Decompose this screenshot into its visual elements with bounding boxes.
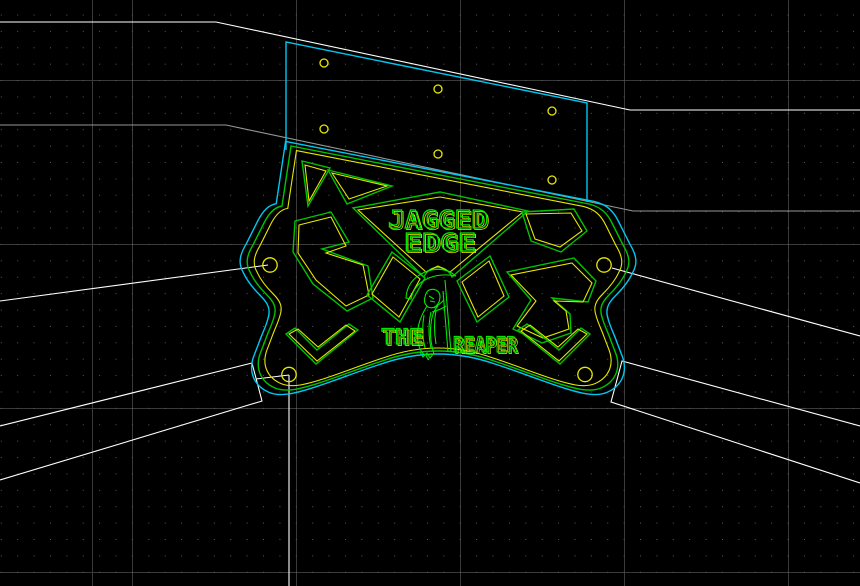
engraving-edge[interactable]: EDGE: [404, 228, 476, 257]
frame-line-right-mid[interactable]: [612, 268, 860, 336]
pocket-right-middle[interactable]: [507, 258, 596, 343]
mounting-hole-bottom-right[interactable]: [578, 367, 592, 381]
frame-line-left-mid[interactable]: [0, 265, 268, 301]
mounting-hole-right[interactable]: [597, 258, 611, 272]
rivet-hole[interactable]: [320, 125, 328, 133]
frame-strip-right[interactable]: [611, 361, 860, 483]
pocket-cutouts[interactable]: [286, 161, 596, 364]
pocket-left-upper-offset[interactable]: [298, 217, 369, 306]
pocket-left-lower-offset[interactable]: [289, 325, 355, 361]
frame-strip-left[interactable]: [0, 363, 262, 480]
rivet-hole[interactable]: [548, 176, 556, 184]
engraving-the[interactable]: THE: [381, 325, 423, 349]
pocket-right-lower-offset[interactable]: [521, 325, 587, 361]
pocket-left-upper[interactable]: [293, 212, 373, 311]
construction-lines[interactable]: [0, 22, 860, 586]
drawing-canvas[interactable]: JAGGED JAGGED EDGE EDGE THE THE REAPER R…: [0, 0, 860, 586]
pocket-triangle-left-1-offset[interactable]: [305, 165, 326, 201]
pocket-triangle-left-2-offset[interactable]: [332, 173, 387, 199]
rivet-hole[interactable]: [434, 150, 442, 158]
cad-viewport[interactable]: JAGGED JAGGED EDGE EDGE THE THE REAPER R…: [0, 0, 860, 586]
engraving-reaper[interactable]: REAPER: [453, 333, 517, 357]
rivet-hole[interactable]: [548, 107, 556, 115]
frame-line-top[interactable]: [0, 22, 860, 110]
scythe-staff: [443, 280, 451, 352]
rivet-hole[interactable]: [320, 59, 328, 67]
pocket-rhombus-right-offset[interactable]: [462, 261, 504, 317]
rivet-hole[interactable]: [434, 85, 442, 93]
